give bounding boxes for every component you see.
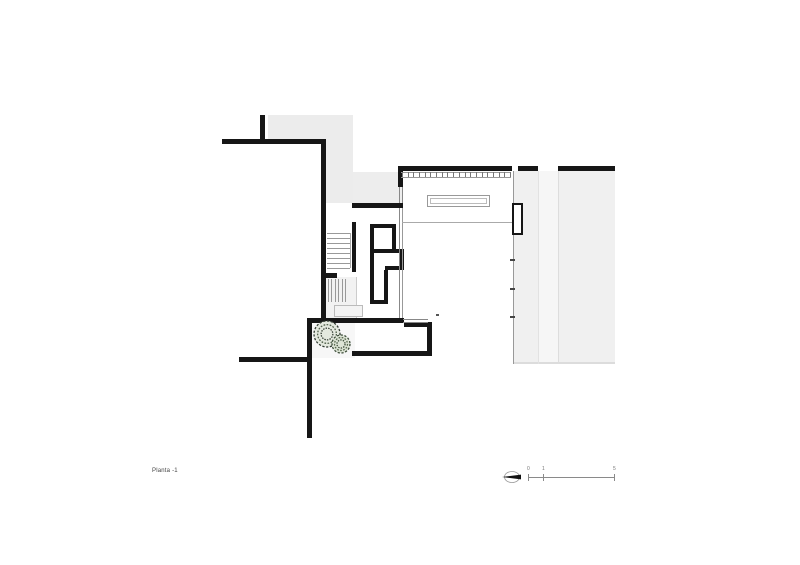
stair-landing xyxy=(334,305,363,317)
wall-stair-stub xyxy=(321,273,337,278)
stair-edge xyxy=(350,233,351,268)
window-mullions-tick xyxy=(447,172,448,177)
stair-lower-tread xyxy=(328,279,329,302)
stair-lower-tread xyxy=(338,279,339,302)
room-right-edge xyxy=(513,171,514,364)
window-mullions-tick xyxy=(499,172,500,177)
window-mullions-tick xyxy=(476,172,477,177)
window-line xyxy=(399,187,400,203)
stair-lower-tread xyxy=(331,279,332,302)
wall-top-left xyxy=(222,139,326,144)
window-line xyxy=(403,322,428,323)
window-line xyxy=(403,319,428,320)
stair-lower-tread xyxy=(345,279,346,302)
wall-core-inner-bottom xyxy=(370,300,388,304)
window-mullions-tick xyxy=(442,172,443,177)
window-mullions-tick xyxy=(504,172,505,177)
stair-upper-tread xyxy=(327,238,350,239)
window-mullions-tick xyxy=(419,172,420,177)
wall-left-boundary xyxy=(321,139,326,322)
stair-lower-tread xyxy=(335,279,336,302)
patio-upper-ground xyxy=(326,142,353,203)
window-line xyxy=(399,208,400,318)
terrace-floor xyxy=(513,171,615,364)
window-mullions-tick xyxy=(453,172,454,177)
wall-stub-top xyxy=(260,115,265,142)
stair-upper-tread xyxy=(327,243,350,244)
window-mullions-tick xyxy=(413,172,414,177)
terrace-joint xyxy=(558,171,559,364)
wall-main-top xyxy=(398,166,512,171)
stair-upper-tread xyxy=(327,248,350,249)
floor-plan xyxy=(0,0,800,565)
window-mullions-tick xyxy=(408,172,409,177)
north-arrow-icon xyxy=(500,469,524,485)
wall-room-bottom xyxy=(352,351,432,356)
mullion-rail xyxy=(401,177,511,178)
survey-mark xyxy=(436,314,439,316)
window-mullions-tick xyxy=(459,172,460,177)
window-line xyxy=(402,208,403,318)
hinge-mark xyxy=(510,316,515,318)
window-mullions-tick xyxy=(510,172,511,177)
stair-upper-tread xyxy=(327,258,350,259)
floor-line xyxy=(402,222,513,223)
mullion-rail xyxy=(401,172,511,173)
chimney-box xyxy=(512,203,523,235)
stair-upper-tread xyxy=(327,253,350,254)
window-mullions-tick xyxy=(482,172,483,177)
stair-upper-tread xyxy=(327,233,350,234)
window-mullions-tick xyxy=(430,172,431,177)
window-mullions-tick xyxy=(487,172,488,177)
tree-icon xyxy=(310,320,354,358)
window-mullions-tick xyxy=(465,172,466,177)
wall-core-top xyxy=(352,203,403,208)
wall-core-left xyxy=(352,222,356,272)
window-mullions-tick xyxy=(436,172,437,177)
patio-upper-ground xyxy=(353,172,403,203)
window-mullions-tick xyxy=(493,172,494,177)
stair-upper-tread xyxy=(327,268,350,269)
hinge-mark xyxy=(510,259,515,261)
hinge-mark xyxy=(510,288,515,290)
patio-upper-ground xyxy=(268,115,353,142)
wall-top-right-b xyxy=(558,166,615,171)
window-mullions-tick xyxy=(425,172,426,177)
drawing-canvas: Planta -1 015 xyxy=(0,0,800,565)
plan-title: Planta -1 xyxy=(152,467,178,475)
wall-core-inner-left xyxy=(370,224,374,304)
window-mullions-tick xyxy=(470,172,471,177)
wall-top-right-a xyxy=(518,166,538,171)
window-mullions-tick xyxy=(402,172,403,177)
window-line xyxy=(402,187,403,203)
stair-lower-tread xyxy=(342,279,343,302)
stair-upper-tread xyxy=(327,263,350,264)
terrace-joint xyxy=(538,171,539,364)
wall-bottom-left xyxy=(239,357,309,362)
wall-core-inner-right-low xyxy=(384,270,388,304)
terrace-edge xyxy=(513,362,615,364)
skylight-outline xyxy=(430,198,487,204)
terrace-strip xyxy=(538,171,558,364)
